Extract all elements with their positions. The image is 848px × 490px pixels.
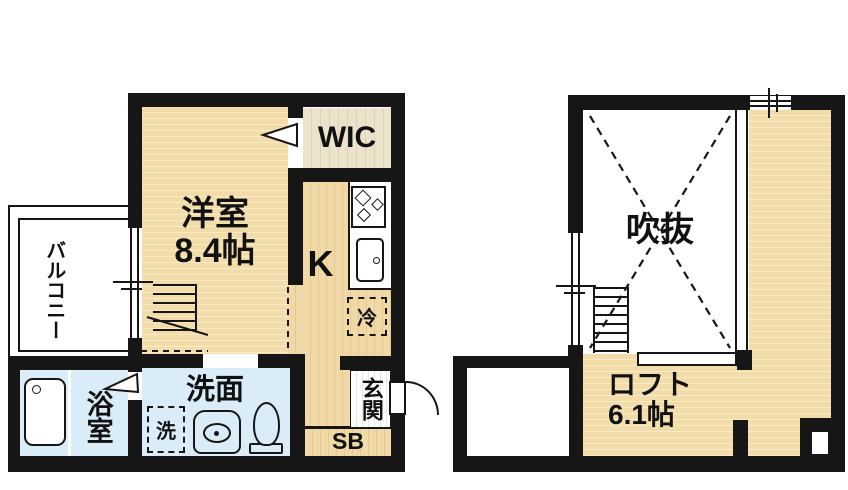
floorplan-canvas: 冷 洗	[0, 0, 848, 490]
burner-icon	[371, 198, 384, 211]
washroom-label: 洗面	[160, 374, 270, 408]
window-pane-line	[130, 228, 132, 338]
wall	[831, 95, 845, 456]
wall	[8, 456, 405, 472]
washing-machine-label: 洗	[156, 415, 176, 444]
refrigerator-space: 冷	[347, 297, 387, 336]
wall	[128, 93, 142, 228]
window-pane-line	[578, 233, 580, 345]
bathtub-drain-icon	[32, 385, 41, 394]
entrance-door-leaf	[389, 381, 406, 415]
refrigerator-label: 冷	[357, 302, 377, 331]
bathroom-label: 浴室	[80, 383, 114, 451]
wall	[8, 368, 20, 472]
western-room-label: 洋室 8.4帖	[150, 188, 280, 278]
wall	[8, 356, 142, 370]
balcony-label: バルコニー	[38, 222, 68, 358]
wall	[453, 456, 845, 472]
wall	[303, 168, 391, 182]
wall	[568, 95, 845, 110]
burner-icon	[357, 208, 371, 222]
void-label: 吹抜	[585, 210, 735, 250]
wall-notch	[812, 432, 828, 454]
wall	[737, 350, 752, 370]
loft-ladder-icon	[593, 287, 629, 353]
wall	[568, 95, 583, 233]
loft-edge-railing-horizontal	[637, 352, 737, 366]
window-pane-line	[571, 233, 573, 345]
wall	[288, 93, 303, 118]
door-swing-icon	[406, 381, 439, 415]
entrance-label: 玄関	[356, 372, 386, 426]
toilet-bowl	[253, 402, 280, 446]
top-window	[750, 96, 791, 110]
loft-edge-railing-vertical	[737, 110, 748, 356]
balcony-inner-rail	[18, 218, 128, 352]
wall	[569, 356, 583, 456]
stove-icon	[351, 186, 386, 228]
kitchen-sink-icon	[356, 238, 384, 282]
wic-label: WIC	[303, 108, 391, 168]
wall	[340, 356, 391, 370]
wall	[258, 354, 305, 368]
washbasin-drain-icon	[214, 431, 219, 436]
bathroom-door-opening	[128, 372, 142, 400]
bathtub-icon	[24, 378, 66, 446]
hall-floor	[288, 285, 303, 354]
washing-machine-space: 洗	[147, 406, 185, 453]
bath-divider-line	[68, 370, 71, 456]
wall	[453, 356, 583, 368]
window-pane-line	[137, 228, 139, 338]
window-pane-line	[750, 105, 791, 107]
shoebox-label: SB	[305, 428, 391, 455]
burner-icon	[355, 190, 372, 207]
first-floor-stairs-icon	[153, 284, 197, 332]
wic-door-opening	[288, 118, 303, 168]
wall	[290, 354, 305, 456]
wall	[128, 354, 203, 368]
loft-label: ロフト 6.1帖	[608, 368, 748, 432]
wall	[128, 93, 405, 107]
washbasin-icon	[193, 410, 241, 454]
faucet-dot-icon	[373, 257, 380, 264]
kitchen-label: K	[298, 238, 343, 290]
wall	[453, 356, 467, 456]
loft-upper-strip-floor	[749, 110, 831, 356]
window-pane-line	[750, 100, 791, 102]
